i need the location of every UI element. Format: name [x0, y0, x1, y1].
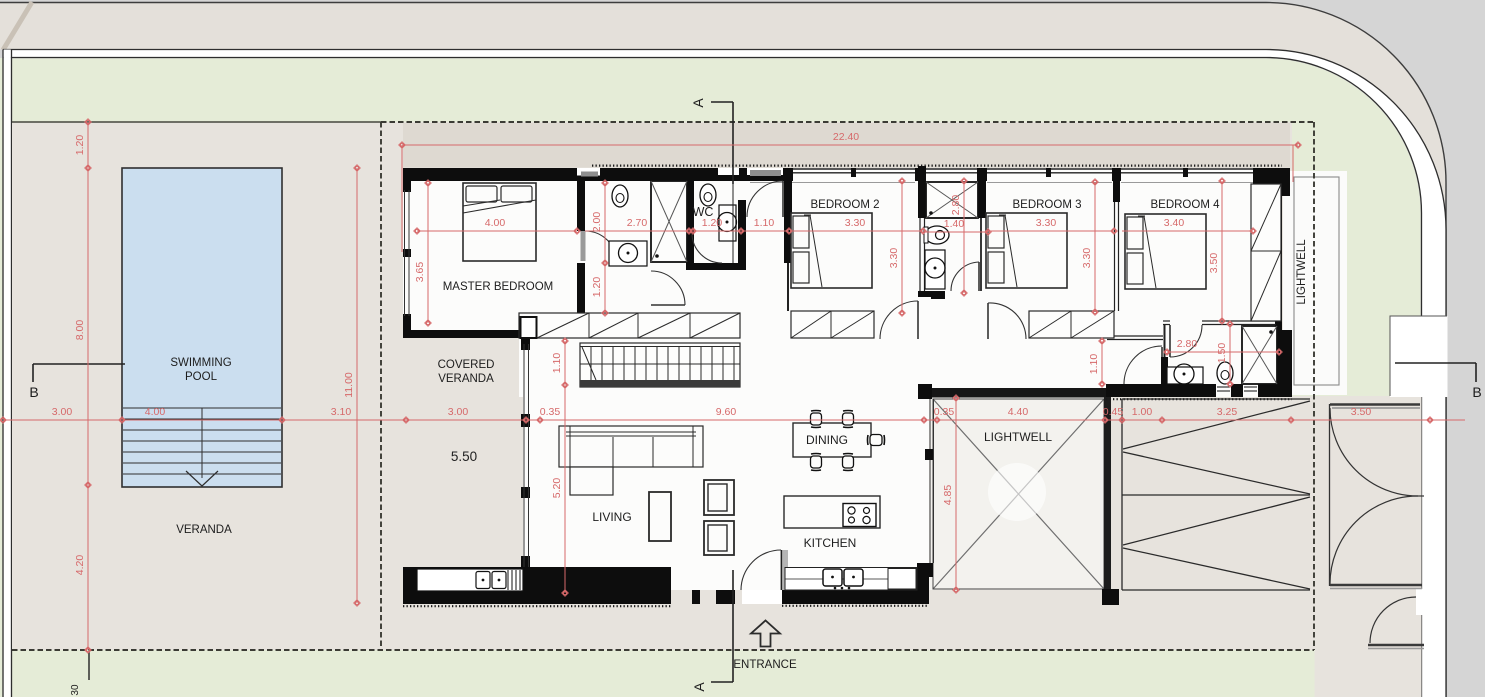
svg-text:0.45: 0.45: [1103, 406, 1124, 418]
svg-text:3.00: 3.00: [448, 406, 469, 418]
svg-text:3.30: 3.30: [1081, 248, 1093, 269]
svg-text:1.40: 1.40: [944, 218, 965, 230]
svg-text:0.35: 0.35: [934, 406, 955, 418]
svg-text:3.10: 3.10: [331, 406, 352, 418]
svg-text:4.00: 4.00: [145, 406, 166, 418]
svg-text:3.00: 3.00: [52, 406, 73, 418]
svg-text:VERANDA: VERANDA: [438, 373, 494, 385]
svg-text:LIGHTWELL: LIGHTWELL: [1296, 239, 1308, 305]
svg-text:9.60: 9.60: [716, 406, 737, 418]
svg-text:4.20: 4.20: [74, 555, 86, 576]
svg-text:B: B: [1472, 384, 1481, 400]
svg-text:LIGHTWELL: LIGHTWELL: [984, 430, 1052, 444]
svg-text:BEDROOM 4: BEDROOM 4: [1150, 199, 1220, 211]
svg-text:3.65: 3.65: [414, 262, 426, 283]
svg-text:4.85: 4.85: [942, 485, 954, 506]
svg-text:1.10: 1.10: [754, 217, 775, 229]
svg-text:A: A: [691, 682, 707, 692]
svg-text:BEDROOM 2: BEDROOM 2: [810, 199, 879, 211]
svg-text:22.40: 22.40: [833, 131, 859, 143]
svg-text:3.50: 3.50: [1208, 253, 1220, 274]
svg-text:B: B: [29, 384, 38, 400]
svg-text:0.35: 0.35: [540, 406, 561, 418]
svg-text:BEDROOM 3: BEDROOM 3: [1012, 199, 1081, 211]
svg-text:30: 30: [70, 684, 81, 696]
svg-text:LIVING: LIVING: [592, 510, 631, 524]
svg-text:5.20: 5.20: [551, 478, 563, 499]
svg-text:ENTRANCE: ENTRANCE: [733, 659, 797, 671]
svg-text:4.40: 4.40: [1008, 406, 1029, 418]
svg-text:POOL: POOL: [185, 371, 218, 383]
svg-text:1.10: 1.10: [551, 353, 563, 374]
svg-text:11.00: 11.00: [343, 372, 355, 398]
svg-text:1.20: 1.20: [591, 277, 603, 298]
svg-text:8.00: 8.00: [74, 320, 86, 341]
svg-text:3.25: 3.25: [1217, 406, 1238, 418]
svg-text:5.50: 5.50: [451, 449, 477, 464]
svg-text:MASTER BEDROOM: MASTER BEDROOM: [443, 281, 554, 293]
svg-text:VERANDA: VERANDA: [176, 524, 232, 536]
svg-text:3.30: 3.30: [888, 248, 900, 269]
svg-text:4.00: 4.00: [485, 217, 506, 229]
svg-text:3.50: 3.50: [1351, 406, 1372, 418]
svg-text:1.10: 1.10: [1088, 354, 1100, 375]
svg-text:1.50: 1.50: [1216, 343, 1228, 364]
svg-text:3.30: 3.30: [845, 217, 866, 229]
svg-text:SWIMMING: SWIMMING: [170, 357, 231, 369]
svg-text:2.80: 2.80: [1177, 338, 1198, 350]
svg-text:2.80: 2.80: [950, 195, 962, 216]
svg-text:1.00: 1.00: [1132, 406, 1153, 418]
svg-text:3.30: 3.30: [1036, 217, 1057, 229]
svg-text:2.00: 2.00: [591, 212, 603, 233]
svg-text:2.70: 2.70: [627, 217, 648, 229]
svg-text:A: A: [690, 98, 706, 108]
svg-text:COVERED: COVERED: [438, 359, 495, 371]
svg-text:1.20: 1.20: [74, 135, 86, 156]
svg-text:KITCHEN: KITCHEN: [804, 536, 857, 550]
svg-text:WC: WC: [693, 205, 714, 219]
svg-text:DINING: DINING: [806, 433, 848, 447]
svg-text:3.40: 3.40: [1164, 217, 1185, 229]
